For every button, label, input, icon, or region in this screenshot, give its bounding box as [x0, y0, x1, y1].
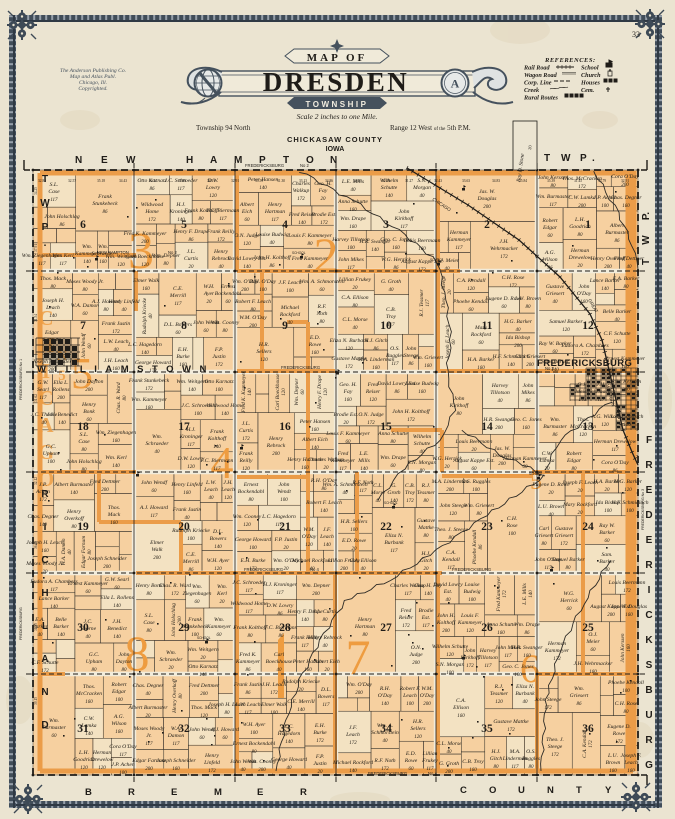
svg-text:32.57: 32.57: [68, 179, 76, 183]
svg-text:Frank Reilly: Frank Reilly: [206, 229, 236, 235]
svg-text:200: 200: [607, 613, 615, 618]
svg-text:60: 60: [548, 234, 554, 239]
svg-text:Ernest Kammeyer: Ernest Kammeyer: [604, 356, 646, 362]
svg-text:M: M: [234, 155, 242, 166]
svg-text:200: 200: [103, 565, 111, 570]
svg-text:117: 117: [177, 187, 185, 192]
svg-text:200: 200: [578, 204, 586, 209]
svg-text:T: T: [283, 155, 289, 166]
svg-text:117: 117: [50, 588, 58, 593]
svg-text:140: 140: [214, 545, 222, 550]
svg-text:E.H.Burke: E.H.Burke: [313, 723, 327, 736]
svg-text:Rudolph Kriecke: Rudolph Kriecke: [281, 679, 320, 685]
svg-text:W: W: [561, 153, 571, 164]
svg-text:140: 140: [297, 708, 305, 713]
svg-text:86: 86: [103, 210, 109, 215]
svg-text:140: 140: [507, 363, 515, 368]
svg-text:L.W. Leach: L.W. Leach: [234, 702, 260, 708]
svg-text:60: 60: [115, 586, 121, 591]
svg-text:C.A. Ellison: C.A. Ellison: [341, 295, 368, 301]
svg-text:Scale 2 inches to one Mile.: Scale 2 inches to one Mile.: [297, 112, 378, 121]
svg-text:86: 86: [246, 691, 252, 696]
svg-text:80: 80: [578, 233, 584, 238]
svg-text:120: 120: [80, 766, 88, 771]
svg-text:N: N: [547, 785, 554, 796]
svg-text:86: 86: [278, 612, 284, 617]
svg-text:120: 120: [242, 467, 250, 472]
svg-text:H.R. Sellers: H.R. Sellers: [340, 519, 368, 525]
svg-text:16: 16: [279, 421, 291, 433]
svg-text:80: 80: [391, 440, 397, 445]
svg-text:140: 140: [360, 467, 368, 472]
svg-text:20: 20: [189, 265, 195, 270]
svg-text:32.56: 32.56: [382, 179, 390, 183]
svg-text:Rudolph Kriecke: Rudolph Kriecke: [142, 297, 148, 335]
svg-text:100: 100: [47, 460, 55, 465]
svg-text:100: 100: [194, 412, 202, 417]
svg-text:Otto Karnatz: Otto Karnatz: [188, 664, 218, 670]
svg-text:Geo. C. Jones: Geo. C. Jones: [510, 417, 541, 423]
svg-text:160: 160: [625, 613, 633, 618]
svg-text:H.R. Swanger: H.R. Swanger: [510, 645, 543, 651]
svg-text:160: 160: [523, 654, 531, 659]
svg-text:33: 33: [279, 723, 291, 735]
svg-text:160: 160: [85, 700, 93, 705]
svg-text:O.S. Ruggles: O.S. Ruggles: [461, 479, 490, 485]
svg-text:40: 40: [383, 739, 389, 744]
svg-text:Thos. Mack: Thos. Mack: [40, 276, 67, 282]
svg-text:S.L.Case: S.L.Case: [78, 432, 90, 445]
svg-text:160: 160: [41, 549, 49, 554]
svg-text:J.H. Benedict: J.H. Benedict: [47, 412, 78, 418]
svg-text:Samuel Barker: Samuel Barker: [549, 319, 583, 325]
svg-text:LillianFrukey: LillianFrukey: [421, 751, 438, 764]
svg-text:Wm. O'Day: Wm. O'Day: [346, 682, 373, 688]
svg-text:40: 40: [241, 768, 247, 773]
svg-text:160: 160: [179, 363, 187, 368]
svg-text:117: 117: [38, 262, 46, 267]
svg-text:NEW HAMPTON: NEW HAMPTON: [97, 250, 129, 255]
svg-text:Township 94 North: Township 94 North: [196, 124, 251, 132]
svg-text:160: 160: [418, 390, 426, 395]
svg-text:117: 117: [511, 765, 519, 770]
svg-text:Joseph Schneider: Joseph Schneider: [156, 758, 196, 764]
svg-text:80: 80: [529, 765, 535, 770]
svg-text:31.62: 31.62: [34, 394, 38, 402]
svg-text:E.D.Rowe: E.D.Rowe: [308, 335, 322, 348]
svg-text:R.H. O'Day: R.H. O'Day: [249, 279, 277, 285]
svg-text:100: 100: [280, 498, 288, 503]
svg-text:117: 117: [301, 644, 309, 649]
svg-text:9: 9: [282, 320, 288, 332]
svg-text:140: 140: [49, 314, 57, 319]
svg-text:No 3: No 3: [545, 366, 555, 371]
svg-text:20: 20: [424, 567, 430, 572]
svg-text:Fred K. Kammeyer: Fred K. Kammeyer: [123, 231, 168, 237]
svg-text:40: 40: [627, 265, 633, 270]
svg-text:E.D. Rowe: E.D. Rowe: [341, 538, 367, 544]
svg-text:160: 160: [112, 439, 120, 444]
svg-text:20: 20: [146, 714, 152, 719]
svg-text:Creek: Creek: [524, 87, 540, 94]
svg-text:20: 20: [220, 600, 226, 605]
svg-text:80: 80: [251, 308, 257, 313]
svg-text:117: 117: [119, 753, 127, 758]
svg-text:120: 120: [345, 347, 353, 352]
svg-text:117: 117: [404, 592, 412, 597]
svg-text:HermanKammeyer: HermanKammeyer: [446, 230, 472, 243]
svg-text:John H. Kolthoff: John H. Kolthoff: [392, 408, 431, 415]
svg-text:5: 5: [181, 219, 187, 231]
svg-text:13: 13: [582, 421, 594, 433]
svg-text:R: R: [645, 735, 653, 746]
svg-text:40: 40: [122, 308, 128, 313]
svg-text:J.L. Curtis: J.L. Curtis: [313, 609, 337, 615]
svg-text:20: 20: [578, 264, 584, 269]
svg-text:20: 20: [169, 666, 175, 671]
svg-text:20: 20: [448, 289, 453, 295]
svg-text:160: 160: [112, 367, 120, 372]
svg-text:REFERENCES:: REFERENCES:: [544, 57, 596, 64]
svg-text:31.54: 31.54: [34, 314, 38, 322]
svg-text:C.B.Troy: C.B.Troy: [386, 307, 397, 320]
svg-text:80: 80: [424, 534, 430, 539]
svg-text:40: 40: [146, 692, 152, 697]
svg-text:I: I: [44, 522, 47, 533]
svg-text:40: 40: [343, 491, 349, 496]
svg-text:172: 172: [623, 589, 631, 594]
svg-text:Louise Budwig: Louise Budwig: [254, 232, 289, 238]
svg-text:100: 100: [508, 532, 516, 537]
svg-text:140: 140: [529, 590, 534, 598]
svg-text:M: M: [214, 787, 222, 798]
svg-text:B: B: [645, 685, 652, 696]
svg-text:80: 80: [494, 765, 500, 770]
svg-text:60: 60: [245, 218, 251, 223]
svg-text:Cora O'Day: Cora O'Day: [109, 744, 137, 750]
svg-text:100: 100: [601, 204, 609, 209]
svg-text:80: 80: [424, 499, 430, 504]
svg-text:C.L. Morse: C.L. Morse: [342, 317, 368, 323]
svg-text:32.91: 32.91: [231, 179, 239, 183]
svg-text:Chas. Degner: Chas. Degner: [27, 514, 59, 520]
svg-text:W.H. Ayer: W.H. Ayer: [243, 722, 266, 728]
svg-text:U: U: [518, 785, 525, 796]
svg-text:20: 20: [284, 567, 290, 572]
svg-text:80: 80: [526, 305, 532, 310]
svg-text:140: 140: [113, 635, 121, 640]
svg-text:100: 100: [622, 689, 630, 694]
svg-text:200: 200: [57, 396, 65, 401]
svg-text:Theo. J. Steege: Theo. J. Steege: [441, 275, 447, 308]
svg-text:40: 40: [323, 644, 329, 649]
svg-text:117: 117: [219, 217, 227, 222]
svg-text:80: 80: [457, 412, 463, 417]
svg-text:40: 40: [549, 513, 555, 518]
svg-text:C.B. Troy: C.B. Troy: [462, 759, 484, 765]
svg-text:27: 27: [380, 622, 392, 634]
svg-text:H.J. Gitch: H.J. Gitch: [363, 338, 387, 344]
svg-text:80: 80: [353, 304, 359, 309]
svg-text:23: 23: [481, 521, 493, 533]
svg-text:F.P. Justin: F.P. Justin: [274, 537, 298, 543]
svg-text:160: 160: [372, 366, 380, 371]
svg-text:Louis Beermann: Louis Beermann: [403, 238, 441, 244]
svg-text:R.F. Noth: R.F. Noth: [373, 758, 395, 764]
svg-text:HermanDrewelow: HermanDrewelow: [568, 248, 592, 261]
svg-text:Henry Overkoff: Henry Overkoff: [171, 678, 178, 714]
svg-text:140: 140: [424, 592, 432, 597]
svg-text:20: 20: [472, 448, 478, 453]
svg-text:H: H: [186, 155, 193, 166]
svg-text:120: 120: [282, 388, 287, 396]
svg-text:120: 120: [466, 629, 474, 634]
svg-text:Cora O'Day: Cora O'Day: [601, 460, 629, 466]
svg-text:60: 60: [223, 736, 229, 741]
svg-text:John Dayton: John Dayton: [75, 379, 104, 385]
svg-text:Joseph Schneider: Joseph Schneider: [32, 359, 72, 365]
svg-text:20: 20: [178, 521, 190, 533]
svg-text:140: 140: [285, 740, 293, 745]
svg-text:17: 17: [178, 421, 190, 433]
svg-text:172: 172: [367, 421, 375, 426]
svg-text:160: 160: [477, 366, 485, 371]
svg-text:6: 6: [80, 219, 86, 231]
svg-text:15: 15: [380, 421, 392, 433]
svg-text:200: 200: [445, 770, 453, 775]
svg-text:R: R: [41, 489, 49, 500]
svg-text:36.63: 36.63: [34, 541, 38, 549]
svg-text:40: 40: [277, 668, 283, 673]
svg-text:W.M. O'Day: W.M. O'Day: [239, 315, 267, 321]
svg-text:T: T: [576, 785, 582, 796]
svg-text:172: 172: [112, 330, 120, 335]
svg-text:100: 100: [259, 288, 267, 293]
svg-text:Chas. Degner: Chas. Degner: [132, 683, 164, 689]
svg-text:H: H: [41, 588, 48, 599]
svg-text:C: C: [645, 610, 652, 621]
svg-text:172: 172: [270, 691, 278, 696]
svg-text:FREDERICKSBURG No 3: FREDERICKSBURG No 3: [641, 489, 645, 530]
svg-text:140: 140: [112, 464, 120, 469]
svg-text:School: School: [581, 65, 599, 72]
svg-text:Wm. Drape: Wm. Drape: [340, 216, 366, 222]
svg-text:Wilhelm Schutte: Wilhelm Schutte: [432, 644, 469, 650]
svg-text:160: 160: [311, 351, 319, 356]
svg-text:Louise Budwig: Louise Budwig: [404, 381, 439, 387]
svg-text:100: 100: [270, 711, 278, 716]
svg-text:40: 40: [389, 288, 395, 293]
svg-text:Henry F. Drape: Henry F. Drape: [172, 229, 209, 235]
svg-text:34.86: 34.86: [325, 179, 333, 183]
svg-text:GustaveMattke: GustaveMattke: [417, 518, 436, 531]
svg-text:Theo. J.Steege: Theo. J.Steege: [546, 737, 564, 750]
svg-text:N: N: [41, 687, 48, 698]
svg-text:John Steege: John Steege: [535, 697, 562, 703]
svg-text:C.L. Morse: C.L. Morse: [436, 741, 462, 747]
svg-text:GustaveGriesert: GustaveGriesert: [555, 526, 574, 539]
svg-text:160: 160: [145, 406, 153, 411]
svg-text:40: 40: [288, 321, 294, 326]
svg-text:80: 80: [248, 634, 254, 639]
svg-text:160: 160: [142, 287, 150, 292]
svg-text:20: 20: [207, 300, 213, 305]
svg-text:160: 160: [344, 398, 352, 403]
svg-text:160: 160: [609, 769, 617, 774]
svg-text:Mary Rockford: Mary Rockford: [562, 501, 597, 508]
svg-text:32.91: 32.91: [621, 179, 629, 183]
svg-text:60: 60: [479, 341, 485, 346]
svg-text:John Wendf: John Wendf: [80, 332, 87, 359]
svg-text:86: 86: [525, 631, 531, 636]
svg-text:20: 20: [545, 467, 551, 472]
svg-text:120: 120: [369, 398, 377, 403]
svg-text:Joseph F. Leach: Joseph F. Leach: [445, 324, 451, 359]
svg-text:80: 80: [72, 525, 78, 530]
svg-text:100: 100: [115, 698, 123, 703]
svg-text:Albert Eich: Albert Eich: [301, 437, 328, 443]
svg-text:86: 86: [395, 390, 401, 395]
svg-text:Wm. Ziegenhagen: Wm. Ziegenhagen: [96, 430, 137, 436]
svg-text:200: 200: [495, 426, 503, 431]
svg-text:117: 117: [245, 610, 253, 615]
svg-text:86: 86: [553, 433, 559, 438]
svg-text:200: 200: [423, 702, 431, 707]
svg-text:172: 172: [509, 284, 517, 289]
svg-text:172: 172: [145, 387, 153, 392]
svg-text:Wm. Burmaster: Wm. Burmaster: [535, 194, 571, 200]
svg-text:117: 117: [597, 398, 605, 403]
svg-text:G.W. Searl: G.W. Searl: [105, 577, 130, 583]
svg-text:39.15: 39.15: [34, 697, 38, 705]
svg-text:Wm. Weitgern: Wm. Weitgern: [176, 379, 208, 385]
svg-text:C.E. Merrill: C.E. Merrill: [287, 699, 315, 705]
svg-text:33: 33: [632, 30, 640, 39]
svg-text:35.39: 35.39: [547, 179, 555, 183]
svg-text:40: 40: [353, 326, 359, 331]
svg-text:MichaelRockford: MichaelRockford: [279, 305, 300, 318]
svg-text:12: 12: [582, 320, 594, 332]
svg-text:Cem.: Cem.: [581, 87, 595, 94]
svg-text:80: 80: [147, 629, 153, 634]
svg-text:31.15: 31.15: [34, 623, 38, 631]
svg-text:Y: Y: [605, 785, 612, 796]
svg-text:117: 117: [245, 589, 253, 594]
svg-text:HenryRebrock: HenryRebrock: [266, 436, 286, 449]
svg-text:J.C. Schroeder: J.C. Schroeder: [232, 580, 266, 586]
svg-text:100: 100: [514, 673, 522, 678]
svg-text:80: 80: [566, 566, 572, 571]
svg-text:FREDERICKSBURG: FREDERICKSBURG: [244, 567, 283, 572]
svg-text:40: 40: [447, 750, 453, 755]
svg-text:86: 86: [60, 223, 66, 228]
svg-text:172: 172: [589, 740, 594, 748]
svg-text:C.H. Rose: C.H. Rose: [502, 275, 525, 281]
svg-text:Carl Boeckhouse: Carl Boeckhouse: [275, 373, 281, 411]
svg-text:20: 20: [321, 197, 327, 202]
svg-text:35: 35: [481, 723, 493, 735]
svg-text:Geo. C. Jones: Geo. C. Jones: [502, 664, 533, 670]
svg-text:W: W: [126, 155, 136, 166]
svg-text:O.N.Judge: O.N.Judge: [409, 645, 423, 658]
svg-text:80: 80: [249, 498, 255, 503]
svg-text:30: 30: [77, 622, 89, 634]
svg-text:L.E. Mills: L.E. Mills: [522, 583, 528, 605]
svg-text:E: E: [646, 485, 653, 496]
svg-text:4: 4: [282, 219, 288, 231]
svg-text:JohnMikes: JohnMikes: [520, 383, 534, 396]
svg-text:S.N. Morgan: S.N. Morgan: [436, 662, 465, 668]
svg-text:40: 40: [287, 766, 293, 771]
svg-text:117: 117: [150, 514, 158, 519]
svg-text:Rural Routes: Rural Routes: [523, 95, 558, 102]
svg-text:Edgar Farnum: Edgar Farnum: [81, 536, 87, 569]
svg-text:20: 20: [325, 668, 331, 673]
svg-text:RobertEdgar: RobertEdgar: [541, 218, 558, 231]
svg-text:40: 40: [553, 300, 559, 305]
svg-text:200: 200: [272, 452, 280, 457]
svg-text:10: 10: [380, 320, 392, 332]
svg-text:140: 140: [323, 543, 331, 548]
svg-text:200: 200: [312, 592, 320, 597]
svg-text:F.C. Biermann: F.C. Biermann: [206, 208, 240, 214]
svg-text:Robert F. Leach: Robert F. Leach: [305, 500, 342, 506]
svg-text:TOWNSHIP: TOWNSHIP: [306, 100, 369, 109]
svg-text:40: 40: [270, 241, 276, 246]
svg-text:Fred Dettmer: Fred Dettmer: [89, 479, 121, 485]
svg-text:80: 80: [477, 512, 483, 517]
svg-text:Albert Burmaster: Albert Burmaster: [54, 482, 95, 488]
svg-text:Frank Stunkebeck: Frank Stunkebeck: [128, 378, 170, 384]
svg-text:20: 20: [43, 570, 49, 575]
svg-text:D: D: [41, 720, 48, 731]
svg-text:172: 172: [345, 365, 353, 370]
svg-text:Wm. Griesert: Wm. Griesert: [413, 355, 444, 361]
svg-text:140: 140: [385, 194, 393, 199]
svg-text:Herman Drewelow: Herman Drewelow: [593, 439, 637, 445]
svg-text:Michael Rockford: Michael Rockford: [291, 557, 332, 564]
svg-text:80: 80: [308, 242, 314, 247]
svg-text:140: 140: [141, 351, 149, 356]
svg-text:120: 120: [209, 194, 217, 199]
svg-text:34.91: 34.91: [207, 179, 215, 183]
svg-text:86: 86: [613, 469, 619, 474]
svg-text:1: 1: [585, 219, 591, 231]
svg-text:100: 100: [406, 702, 414, 707]
svg-text:FREDERICKSBURG: FREDERICKSBURG: [368, 771, 407, 776]
svg-text:172: 172: [215, 363, 223, 368]
svg-text:60: 60: [83, 312, 89, 317]
svg-text:117: 117: [484, 664, 492, 669]
svg-text:60: 60: [86, 590, 92, 595]
svg-text:80: 80: [363, 633, 369, 638]
svg-text:117: 117: [422, 624, 430, 629]
svg-text:WILLIAMSTOWN: WILLIAMSTOWN: [37, 364, 215, 375]
svg-text:40: 40: [38, 633, 44, 638]
svg-text:Corp. Line: Corp. Line: [524, 80, 552, 87]
svg-text:172: 172: [297, 197, 305, 202]
svg-text:26: 26: [481, 622, 493, 634]
svg-text:Rudolph Kriecke: Rudolph Kriecke: [171, 528, 210, 534]
svg-text:117: 117: [391, 362, 399, 367]
svg-text:40: 40: [376, 499, 382, 504]
svg-text:Fred Kammeyer: Fred Kammeyer: [496, 576, 502, 613]
svg-text:100: 100: [250, 731, 258, 736]
svg-text:20: 20: [578, 511, 584, 516]
svg-text:R: R: [645, 560, 653, 571]
svg-text:160: 160: [311, 428, 319, 433]
svg-text:E.H.Burke: E.H.Burke: [176, 347, 190, 360]
